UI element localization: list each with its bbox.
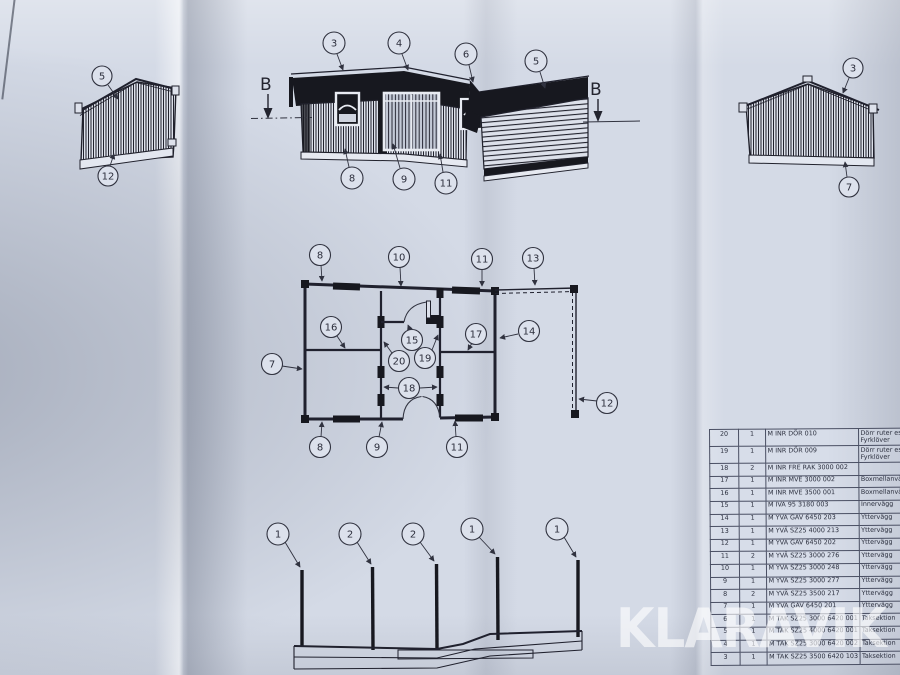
callout-elev-4: 4 (388, 32, 410, 70)
parts-table-cell: 1 (739, 514, 766, 527)
callout-plan-14: 14 (500, 321, 540, 342)
post (437, 564, 438, 648)
section-cut-line-right (583, 121, 640, 122)
plan-jamb (378, 366, 385, 378)
sill-rail-bottom (294, 650, 582, 669)
plan-window (452, 290, 480, 291)
callout-label: 8 (317, 443, 323, 454)
parts-table-row: 191M INR DÖR 009Dörr ruter ess Fyrklöver (710, 445, 900, 464)
callout-left-gable-5: 5 (92, 66, 118, 99)
paddock-wall-top (495, 288, 576, 290)
callout-label: 1 (554, 525, 560, 536)
window-pane (339, 114, 356, 122)
parts-table-cell: 17 (710, 476, 739, 489)
parts-table-cell: 11 (710, 552, 739, 565)
callout-label: 7 (846, 183, 852, 194)
callout-plan-11-top: 11 (472, 249, 493, 287)
section-arrow-head (264, 108, 273, 119)
callout-label: 10 (393, 253, 406, 264)
parts-table-cell: 16 (710, 489, 739, 502)
parts-table-cell: M IVÄ 95 3180 003 (766, 500, 859, 513)
paddock-end-block (571, 410, 579, 418)
door-leaf (427, 301, 431, 318)
callout-label: 12 (102, 172, 115, 183)
callout-sect-2b: 2 (402, 523, 434, 561)
section-letter-b-left: B (260, 75, 272, 95)
parts-table-cell: 1 (739, 526, 766, 539)
parts-table-cell: M YVÄ SZ25 3000 277 (767, 576, 860, 589)
callout-label: 14 (523, 327, 536, 338)
paddock-corner (570, 285, 578, 293)
callout-label: 8 (317, 251, 323, 262)
entrance-arc-left (403, 397, 422, 420)
callout-label: 8 (349, 174, 355, 185)
section-arrow-head (594, 111, 603, 122)
parts-table-cell: Dörr ruter ess Fyrklöver (858, 428, 900, 446)
callout-right-gable-3: 3 (843, 58, 863, 93)
parts-table-cell: M INR MVE 3000 002 (766, 475, 859, 488)
callout-label: 3 (850, 64, 856, 75)
plan-window (333, 286, 360, 287)
callout-plan-11-bottom: 11 (447, 421, 468, 458)
callout-label: 9 (401, 175, 407, 186)
fascia-end-cap (289, 77, 293, 107)
parts-table-cell: 1 (739, 446, 766, 463)
callout-label: 15 (406, 336, 419, 347)
parts-table-cell: 1 (739, 564, 766, 577)
parts-table-cell: 9 (711, 577, 740, 590)
callout-label: 1 (275, 530, 281, 541)
parts-table-cell: Yttervägg (859, 538, 900, 551)
callout-label: 11 (440, 179, 453, 190)
parts-table-cell (859, 462, 900, 475)
parts-table-cell: 1 (739, 476, 766, 489)
parts-table-cell: M YVÄ GAV 6450 202 (766, 538, 859, 551)
left-gable-eave-right (172, 86, 179, 95)
callout-label: 17 (470, 330, 483, 341)
callout-elev-3: 3 (323, 32, 345, 70)
callout-right-gable-7: 7 (839, 162, 859, 197)
callout-sect-1c: 1 (546, 518, 576, 557)
parts-table-cell: Boxmellanvägg (859, 475, 900, 488)
parts-table-cell: Yttervägg (859, 576, 900, 589)
parts-table-cell: Yttervägg (859, 563, 900, 576)
parts-table-cell: 20 (710, 429, 739, 446)
door-swing-arc (404, 302, 427, 322)
callout-label: 20 (393, 357, 406, 368)
callout-label: 2 (410, 530, 416, 541)
plan-corner (301, 415, 309, 423)
callout-label: 11 (451, 443, 464, 454)
right-gable-elevation: 3 7 (739, 58, 879, 197)
callout-sect-2a: 2 (339, 523, 371, 564)
callout-plan-16: 16 (321, 317, 346, 349)
callout-plan-8-top: 8 (310, 245, 331, 282)
parts-table-cell: 15 (710, 501, 739, 514)
parts-table-cell: 1 (739, 488, 766, 501)
floor-plan: 8 10 11 13 7 16 (262, 245, 618, 458)
callout-label: 16 (325, 323, 338, 334)
plan-jamb (437, 394, 444, 406)
callout-label: 6 (463, 50, 469, 61)
plan-jamb (437, 366, 444, 378)
parts-table-cell: 1 (740, 577, 767, 590)
parts-table-cell: M YVÄ SZ25 4000 213 (766, 526, 859, 539)
callout-label: 9 (374, 443, 380, 454)
callout-label: 19 (419, 354, 432, 365)
parts-table-cell: Dörr ruter ess Fyrklöver (859, 445, 900, 463)
window-left (336, 93, 359, 125)
parts-table-cell: 1 (739, 539, 766, 552)
callout-label: 13 (527, 254, 540, 265)
right-gable-ridge-cap (803, 76, 812, 82)
parts-table-cell: 13 (710, 526, 739, 539)
plan-jamb (437, 288, 444, 298)
callout-label: 5 (533, 57, 539, 68)
parts-table-cell: Innervägg (859, 500, 900, 513)
plan-corner (301, 280, 309, 288)
parts-table-cell: 19 (710, 446, 739, 463)
callout-plan-17: 17 (466, 324, 487, 351)
parts-table-cell: M YVÄ SZ25 3000 248 (766, 563, 859, 576)
post (373, 567, 374, 650)
callout-plan-9: 9 (367, 422, 388, 458)
parts-table-cell: M INR MVE 3500 001 (766, 488, 859, 501)
callout-plan-13: 13 (523, 248, 544, 286)
callout-label: 18 (403, 384, 416, 395)
parts-table-cell: 2 (739, 463, 766, 476)
callout-plan-15: 15 (402, 325, 423, 351)
section-marker-right: B (583, 80, 640, 122)
right-gable-wall (746, 84, 874, 158)
callout-plan-18: 18 (384, 378, 437, 399)
parts-table-cell: M INR DÖR 009 (766, 446, 859, 464)
parts-table-cell: Yttervägg (859, 525, 900, 538)
left-gable-bracket (168, 139, 176, 146)
callout-label: 7 (269, 360, 275, 371)
parts-table-cell: M INR DÖR 010 (766, 428, 859, 446)
parts-table-cell: M YVÄ GAV 6450 203 (766, 513, 859, 526)
callout-plan-7: 7 (262, 354, 303, 375)
callout-label: 12 (601, 399, 614, 410)
parts-table-cell: Yttervägg (859, 550, 900, 563)
callout-elev-6: 6 (455, 43, 477, 82)
callout-label: 4 (396, 39, 402, 50)
parts-table-cell: M INR FRE RAK 3000 002 (766, 463, 859, 476)
base-section-drawing: 1 2 2 1 1 (267, 518, 582, 669)
callout-sect-1a: 1 (267, 523, 300, 567)
left-gable-eave-left (75, 103, 82, 113)
parts-table-cell: 18 (710, 463, 739, 476)
parts-table-cell: Boxmellanvägg (859, 487, 900, 500)
post (498, 557, 499, 640)
callout-plan-10: 10 (389, 247, 410, 287)
plan-corner (491, 413, 499, 421)
klaravik-watermark: KLARAVIK (616, 597, 886, 660)
parts-table-cell: M YVÄ SZ25 3000 276 (766, 551, 859, 564)
parts-table-cell: 10 (710, 564, 739, 577)
callout-plan-12: 12 (579, 393, 618, 414)
paddock-wall-top-hatch (495, 292, 576, 294)
callout-label: 2 (347, 530, 353, 541)
callout-label: 3 (331, 39, 337, 50)
callout-sect-1b: 1 (461, 518, 495, 554)
parts-table-cell: 1 (739, 501, 766, 514)
right-gable-eave-right (869, 104, 877, 113)
parts-table-cell: 2 (739, 551, 766, 564)
section-letter-b-right: B (590, 80, 602, 100)
parts-table-cell: 14 (710, 514, 739, 527)
callout-label: 5 (99, 72, 105, 83)
callout-plan-8-bottom: 8 (310, 422, 331, 458)
front-elevation: B B 3 4 6 5 (251, 32, 640, 194)
parts-table-cell: 12 (710, 539, 739, 552)
right-gable-eave-left (739, 103, 747, 112)
parts-table-cell: 1 (739, 429, 766, 446)
parts-table-row: 201M INR DÖR 010Dörr ruter ess Fyrklöver (710, 428, 900, 447)
plan-jamb (378, 394, 385, 406)
parts-table-cell: Yttervägg (859, 513, 900, 526)
callout-label: 1 (469, 525, 475, 536)
callout-label: 11 (476, 255, 489, 266)
left-gable-elevation: 5 12 (75, 66, 179, 186)
sliding-door (384, 93, 439, 150)
